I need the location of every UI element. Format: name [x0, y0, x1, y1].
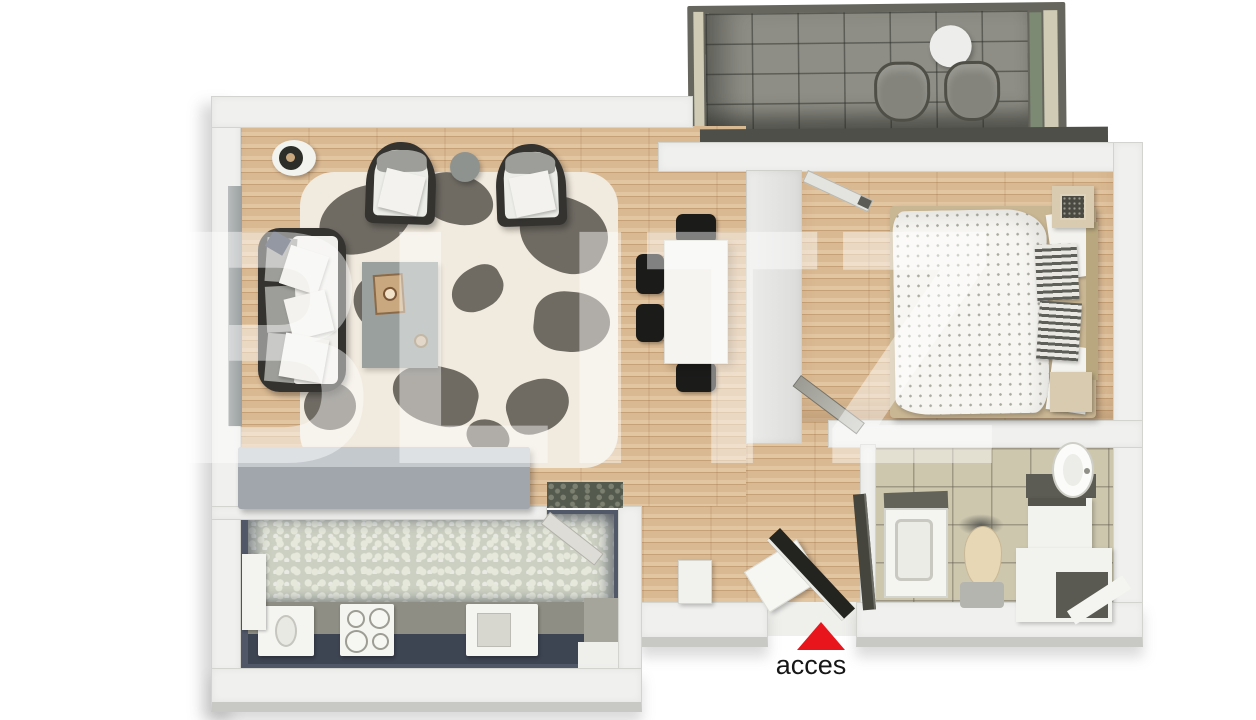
bed-pillow-striped: [1036, 301, 1082, 362]
wall-top-living: [211, 96, 693, 128]
dining-chair: [636, 254, 664, 294]
nightstand: [1050, 372, 1092, 412]
coffee-table-rug: [362, 262, 438, 368]
kitchen-pass-counter: [547, 482, 623, 508]
dining-chair: [636, 304, 664, 342]
shower-tray: [884, 508, 948, 598]
decor-bowl: [272, 140, 316, 176]
serving-tray: [373, 273, 406, 315]
wall-bottom-hall-left: [640, 602, 768, 647]
side-table: [450, 152, 480, 182]
cow-rug: [300, 172, 618, 468]
balcony-chair: [944, 61, 1001, 122]
bathroom-sink: [1052, 442, 1094, 498]
wall-bottom-kitchen: [211, 668, 642, 712]
wall-top-right: [658, 142, 1143, 172]
decor-knob: [414, 334, 428, 348]
entrance-label: acces: [756, 650, 866, 681]
toilet-tank: [960, 582, 1004, 608]
sofa-pillow: [279, 333, 330, 384]
bed-headboard: [1086, 222, 1098, 380]
stove: [340, 604, 394, 656]
dining-table: [664, 240, 728, 364]
bathroom-cabinet: [1028, 498, 1092, 550]
floor-plan-render: BLITZ acces: [0, 0, 1256, 720]
window-glass: [228, 186, 242, 426]
shoe-cabinet: [678, 560, 712, 604]
entrance-arrow-icon: [797, 622, 845, 650]
balcony-planter: [1029, 12, 1042, 128]
kitchen-appliance: [258, 606, 314, 656]
kitchen-corner-counter: [584, 598, 620, 642]
tv-sideboard: [238, 447, 530, 509]
fridge: [242, 554, 266, 630]
toilet: [956, 512, 1008, 612]
nightstand: [1052, 186, 1094, 228]
balcony-trim-right: [1043, 10, 1058, 130]
toilet-bowl: [964, 526, 1002, 586]
balcony-trim-left: [693, 12, 704, 140]
balcony-chair: [874, 61, 931, 122]
wall-dining-partition: [746, 170, 802, 444]
bathroom-bench: [1016, 548, 1112, 622]
wall-right: [1113, 142, 1143, 647]
sofa: [258, 228, 346, 392]
kitchen-sink: [466, 604, 538, 656]
dining-chair: [676, 362, 716, 392]
armchair-pillow: [509, 170, 556, 217]
bed-pillow-striped: [1035, 243, 1080, 301]
kitchen-corner-cabinet: [578, 642, 622, 668]
bed-duvet: [892, 209, 1050, 416]
armchair-bolster: [377, 150, 427, 173]
